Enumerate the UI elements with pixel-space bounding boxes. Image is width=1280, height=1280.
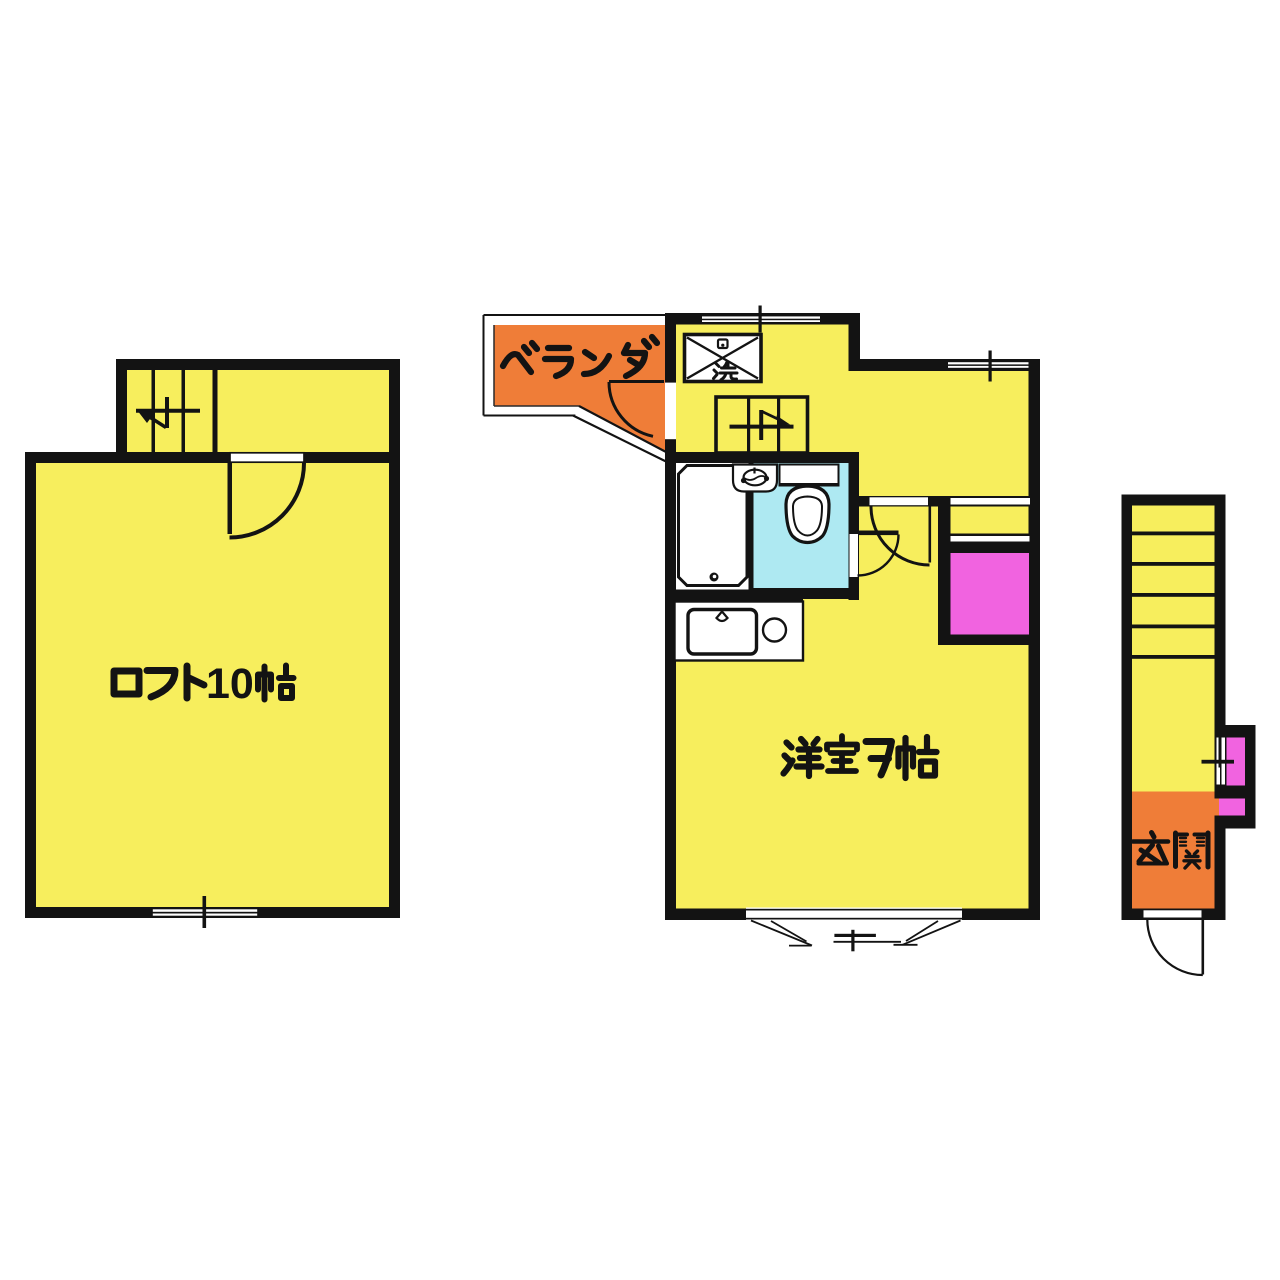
svg-text:10: 10 <box>206 660 254 708</box>
